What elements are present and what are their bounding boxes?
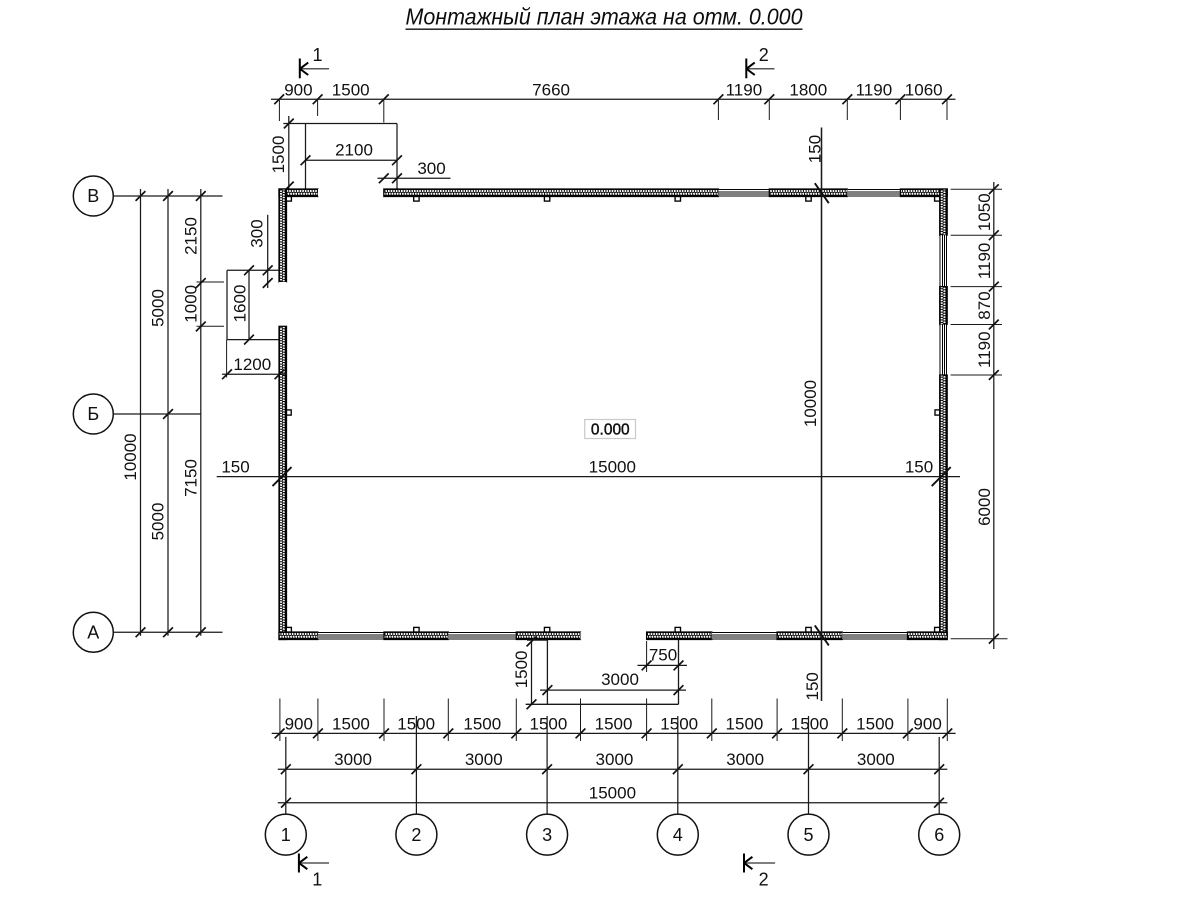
- svg-text:870: 870: [975, 291, 994, 319]
- svg-text:2150: 2150: [181, 217, 200, 255]
- svg-text:3000: 3000: [857, 750, 895, 769]
- svg-text:300: 300: [248, 219, 267, 247]
- svg-text:6: 6: [934, 825, 944, 845]
- svg-text:А: А: [87, 623, 99, 643]
- svg-text:5: 5: [803, 825, 813, 845]
- svg-text:Монтажный план этажа на отм. 0: Монтажный план этажа на отм. 0.000: [406, 4, 803, 30]
- svg-text:1500: 1500: [463, 715, 501, 734]
- svg-text:3000: 3000: [334, 750, 372, 769]
- svg-text:10000: 10000: [121, 433, 140, 480]
- svg-text:7660: 7660: [532, 81, 570, 100]
- svg-text:2: 2: [411, 825, 421, 845]
- svg-text:1600: 1600: [231, 285, 250, 323]
- svg-text:1500: 1500: [512, 650, 531, 688]
- svg-text:1060: 1060: [905, 81, 943, 100]
- svg-text:7150: 7150: [181, 459, 200, 497]
- svg-text:3000: 3000: [465, 750, 503, 769]
- svg-text:3: 3: [542, 825, 552, 845]
- svg-text:5000: 5000: [149, 289, 168, 327]
- svg-text:3000: 3000: [601, 670, 639, 689]
- svg-text:1800: 1800: [789, 81, 827, 100]
- svg-text:1190: 1190: [975, 331, 994, 368]
- svg-text:750: 750: [649, 646, 677, 665]
- svg-text:900: 900: [285, 715, 313, 734]
- svg-text:1500: 1500: [660, 715, 698, 734]
- svg-text:1200: 1200: [233, 355, 271, 374]
- svg-text:6000: 6000: [975, 488, 994, 526]
- svg-text:1190: 1190: [726, 81, 763, 100]
- svg-text:1500: 1500: [269, 136, 288, 174]
- svg-text:1000: 1000: [181, 285, 200, 323]
- svg-text:4: 4: [673, 825, 683, 845]
- svg-text:900: 900: [284, 81, 312, 100]
- svg-text:2: 2: [759, 870, 769, 890]
- svg-text:2100: 2100: [335, 140, 373, 159]
- svg-text:3000: 3000: [726, 750, 764, 769]
- svg-text:1050: 1050: [975, 193, 994, 231]
- svg-text:1190: 1190: [975, 243, 994, 280]
- svg-text:15000: 15000: [589, 784, 636, 803]
- svg-text:1500: 1500: [791, 715, 829, 734]
- svg-text:1500: 1500: [856, 715, 894, 734]
- svg-text:1500: 1500: [595, 715, 633, 734]
- svg-text:1500: 1500: [726, 715, 764, 734]
- svg-text:3000: 3000: [596, 750, 634, 769]
- svg-text:1190: 1190: [856, 81, 893, 100]
- svg-text:15000: 15000: [589, 457, 636, 476]
- svg-text:1500: 1500: [332, 715, 370, 734]
- svg-text:1: 1: [312, 45, 322, 65]
- svg-text:150: 150: [803, 672, 822, 700]
- svg-text:150: 150: [221, 457, 249, 476]
- svg-text:0.000: 0.000: [591, 421, 630, 438]
- svg-text:1500: 1500: [332, 81, 370, 100]
- svg-text:300: 300: [417, 159, 445, 178]
- svg-text:150: 150: [806, 135, 825, 163]
- svg-text:5000: 5000: [149, 503, 168, 541]
- svg-text:150: 150: [905, 457, 933, 476]
- svg-text:1500: 1500: [529, 715, 567, 734]
- svg-text:1: 1: [281, 825, 291, 845]
- svg-text:2: 2: [759, 45, 769, 65]
- svg-text:Б: Б: [87, 404, 99, 424]
- svg-text:В: В: [87, 186, 99, 206]
- svg-text:10000: 10000: [801, 380, 820, 427]
- svg-text:1: 1: [312, 870, 322, 890]
- svg-text:900: 900: [913, 715, 941, 734]
